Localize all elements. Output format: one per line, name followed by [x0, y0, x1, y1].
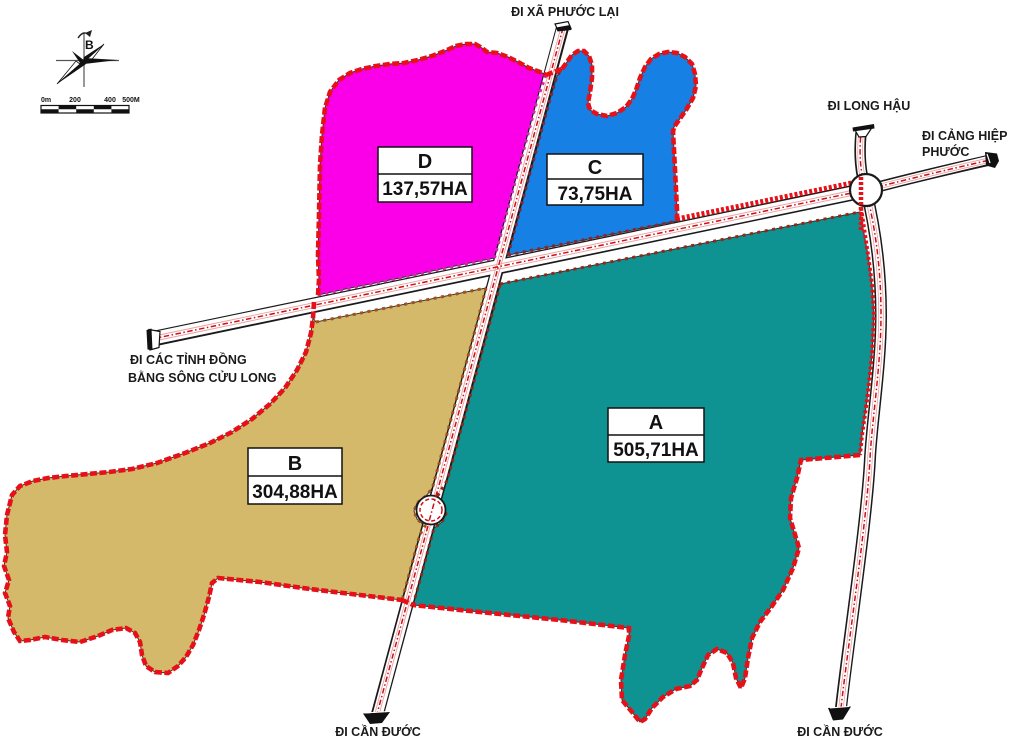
svg-text:BẰNG SÔNG CỬU LONG: BẰNG SÔNG CỬU LONG — [128, 370, 277, 385]
svg-text:73,75HA: 73,75HA — [558, 184, 633, 205]
svg-text:D: D — [418, 151, 432, 173]
svg-text:A: A — [649, 412, 663, 434]
svg-text:ĐI XÃ PHƯỚC LẠI: ĐI XÃ PHƯỚC LẠI — [511, 4, 619, 19]
svg-text:ĐI CẢNG HIỆP: ĐI CẢNG HIỆP — [922, 128, 1007, 143]
svg-text:ĐI LONG HẬU: ĐI LONG HẬU — [828, 98, 911, 113]
svg-text:400: 400 — [104, 97, 116, 104]
svg-text:0m: 0m — [41, 97, 51, 104]
svg-text:B: B — [288, 453, 302, 475]
svg-text:B: B — [85, 38, 94, 52]
svg-text:200: 200 — [69, 97, 81, 104]
svg-text:ĐI CẦN ĐƯỚC: ĐI CẦN ĐƯỚC — [335, 724, 421, 739]
svg-text:ĐI CẦN ĐƯỚC: ĐI CẦN ĐƯỚC — [797, 724, 883, 739]
svg-text:137,57HA: 137,57HA — [382, 179, 468, 200]
svg-text:PHƯỚC: PHƯỚC — [922, 144, 969, 159]
svg-text:ĐI CÁC TỈNH ĐỒNG: ĐI CÁC TỈNH ĐỒNG — [130, 352, 247, 367]
svg-text:505,71HA: 505,71HA — [613, 440, 699, 461]
svg-text:500M: 500M — [122, 97, 140, 104]
svg-text:C: C — [588, 157, 602, 179]
svg-text:304,88HA: 304,88HA — [252, 482, 338, 503]
